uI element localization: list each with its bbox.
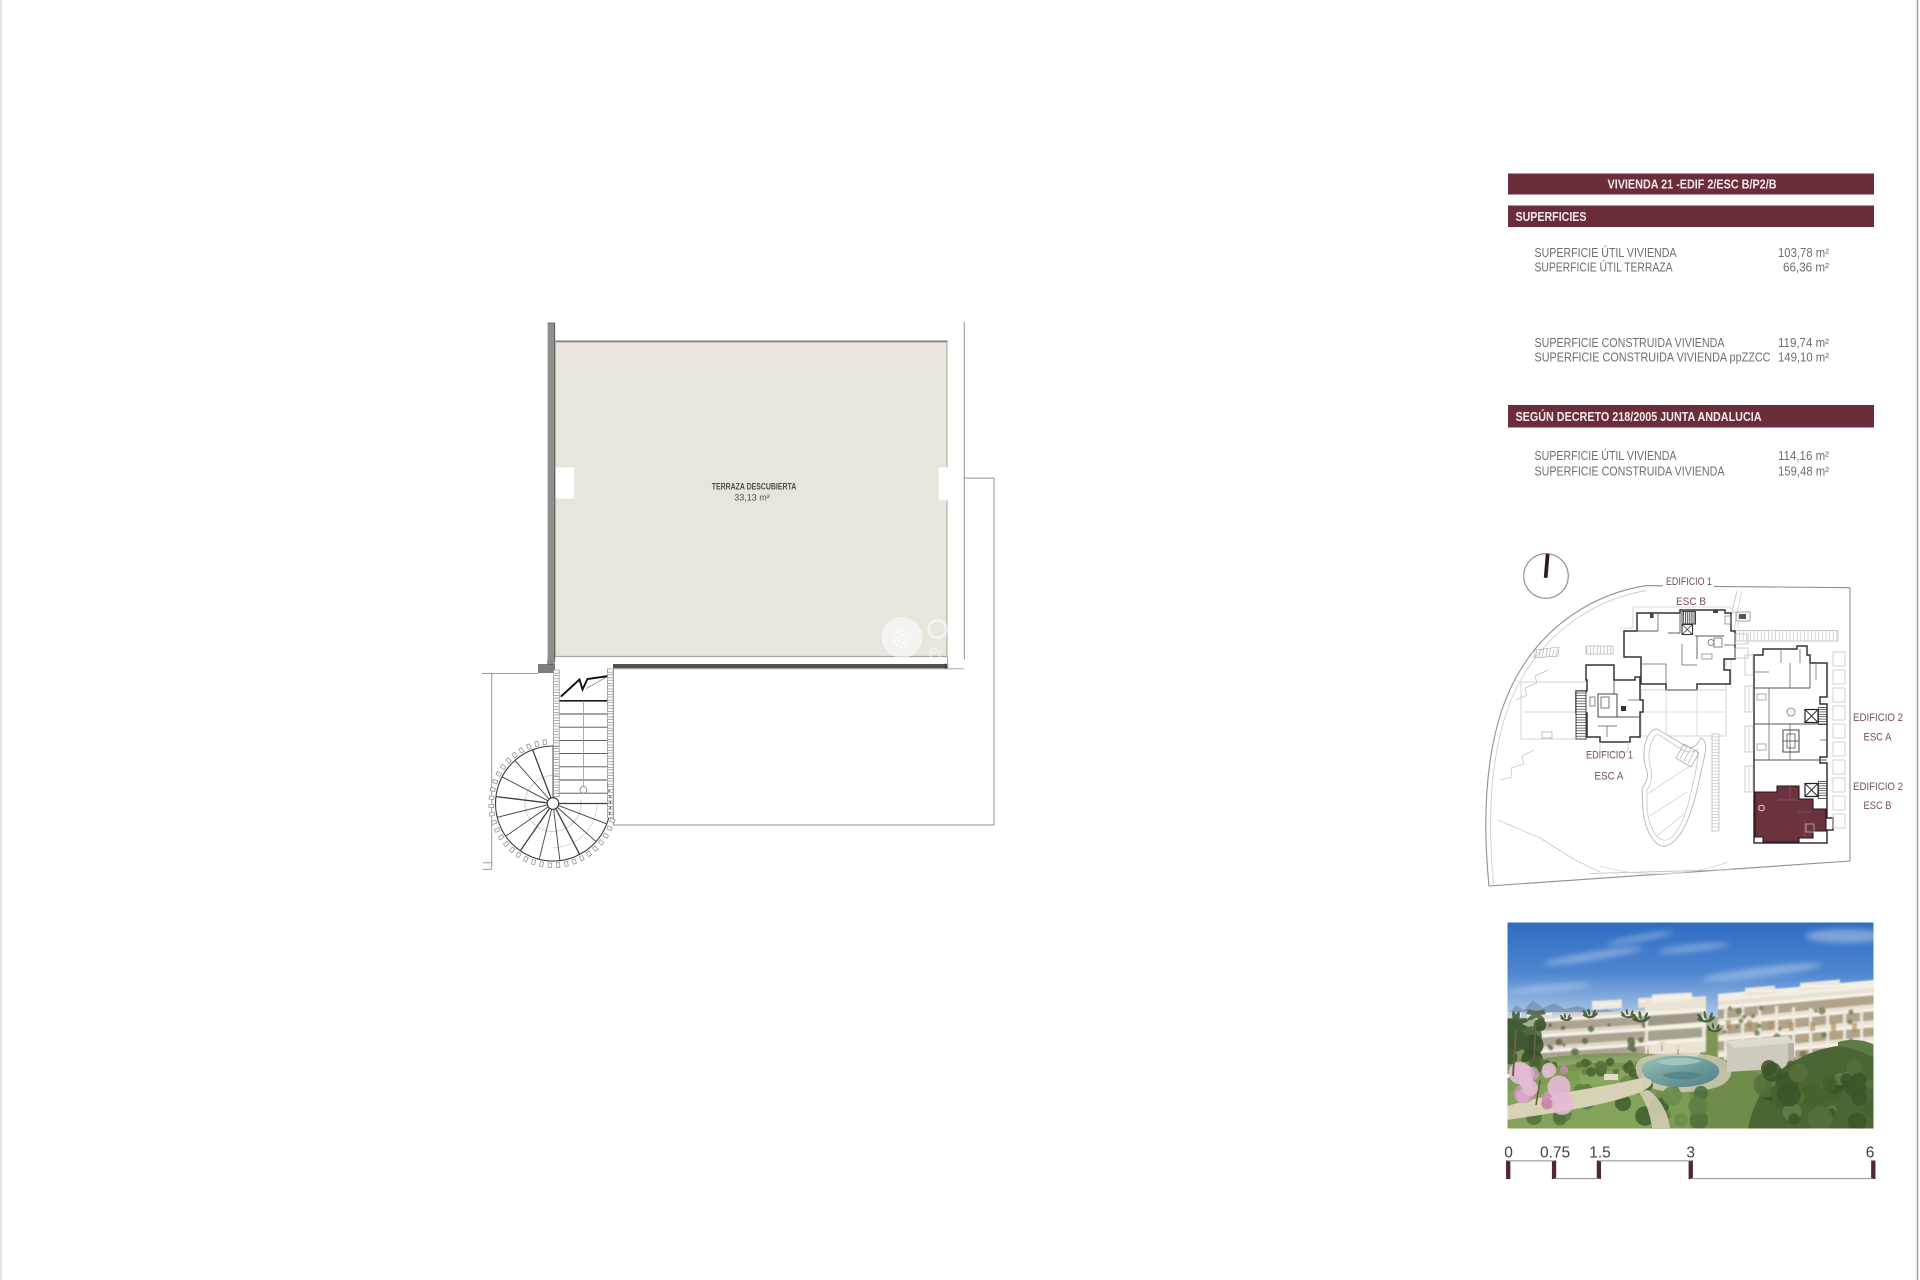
svg-text:1.5: 1.5	[1589, 1145, 1611, 1162]
svg-text:119,74 m²: 119,74 m²	[1778, 335, 1830, 350]
svg-text:114,16 m²: 114,16 m²	[1778, 448, 1830, 463]
svg-text:ESC A: ESC A	[1864, 731, 1893, 743]
svg-text:66,36 m²: 66,36 m²	[1783, 259, 1830, 274]
svg-text:159,48 m²: 159,48 m²	[1778, 464, 1830, 479]
svg-text:EDIFICIO 2: EDIFICIO 2	[1853, 712, 1903, 724]
svg-text:103,78 m²: 103,78 m²	[1778, 245, 1830, 260]
svg-text:33,13 m²: 33,13 m²	[734, 493, 770, 503]
svg-text:ESC B: ESC B	[1676, 596, 1706, 608]
svg-text:0: 0	[1504, 1145, 1513, 1162]
svg-text:EDIFICIO 1: EDIFICIO 1	[1666, 576, 1712, 588]
svg-text:SUPERFICIE ÚTIL TERRAZA: SUPERFICIE ÚTIL TERRAZA	[1535, 259, 1673, 274]
svg-text:ESC A: ESC A	[1595, 771, 1625, 783]
svg-text:6: 6	[1866, 1145, 1875, 1162]
svg-text:SEGÚN DECRETO 218/2005 JUNTA A: SEGÚN DECRETO 218/2005 JUNTA ANDALUCIA	[1516, 409, 1762, 424]
svg-text:149,10 m²: 149,10 m²	[1778, 350, 1830, 365]
svg-text:ESC B: ESC B	[1864, 800, 1892, 812]
svg-text:SUPERFICIE CONSTRUIDA VIVIENDA: SUPERFICIE CONSTRUIDA VIVIENDA	[1535, 335, 1725, 350]
svg-text:VIVIENDA 21 -EDIF 2/ESC B/P2/B: VIVIENDA 21 -EDIF 2/ESC B/P2/B	[1608, 176, 1777, 191]
svg-text:3: 3	[1686, 1145, 1695, 1162]
svg-text:SUPERFICIE CONSTRUIDA VIVIENDA: SUPERFICIE CONSTRUIDA VIVIENDA ppZZCC	[1535, 350, 1771, 365]
svg-text:0.75: 0.75	[1540, 1145, 1570, 1162]
svg-text:EDIFICIO 1: EDIFICIO 1	[1586, 750, 1633, 762]
svg-text:SUPERFICIE ÚTIL VIVIENDA: SUPERFICIE ÚTIL VIVIENDA	[1535, 448, 1677, 463]
svg-text:TERRAZA DESCUBIERTA: TERRAZA DESCUBIERTA	[712, 482, 797, 492]
svg-text:SUPERFICIES: SUPERFICIES	[1516, 209, 1587, 224]
svg-text:SUPERFICIE ÚTIL VIVIENDA: SUPERFICIE ÚTIL VIVIENDA	[1535, 245, 1677, 260]
svg-text:EDIFICIO 2: EDIFICIO 2	[1853, 781, 1903, 793]
svg-text:Pr: Pr	[929, 645, 943, 660]
svg-text:SUPERFICIE CONSTRUIDA VIVIENDA: SUPERFICIE CONSTRUIDA VIVIENDA	[1535, 464, 1725, 479]
